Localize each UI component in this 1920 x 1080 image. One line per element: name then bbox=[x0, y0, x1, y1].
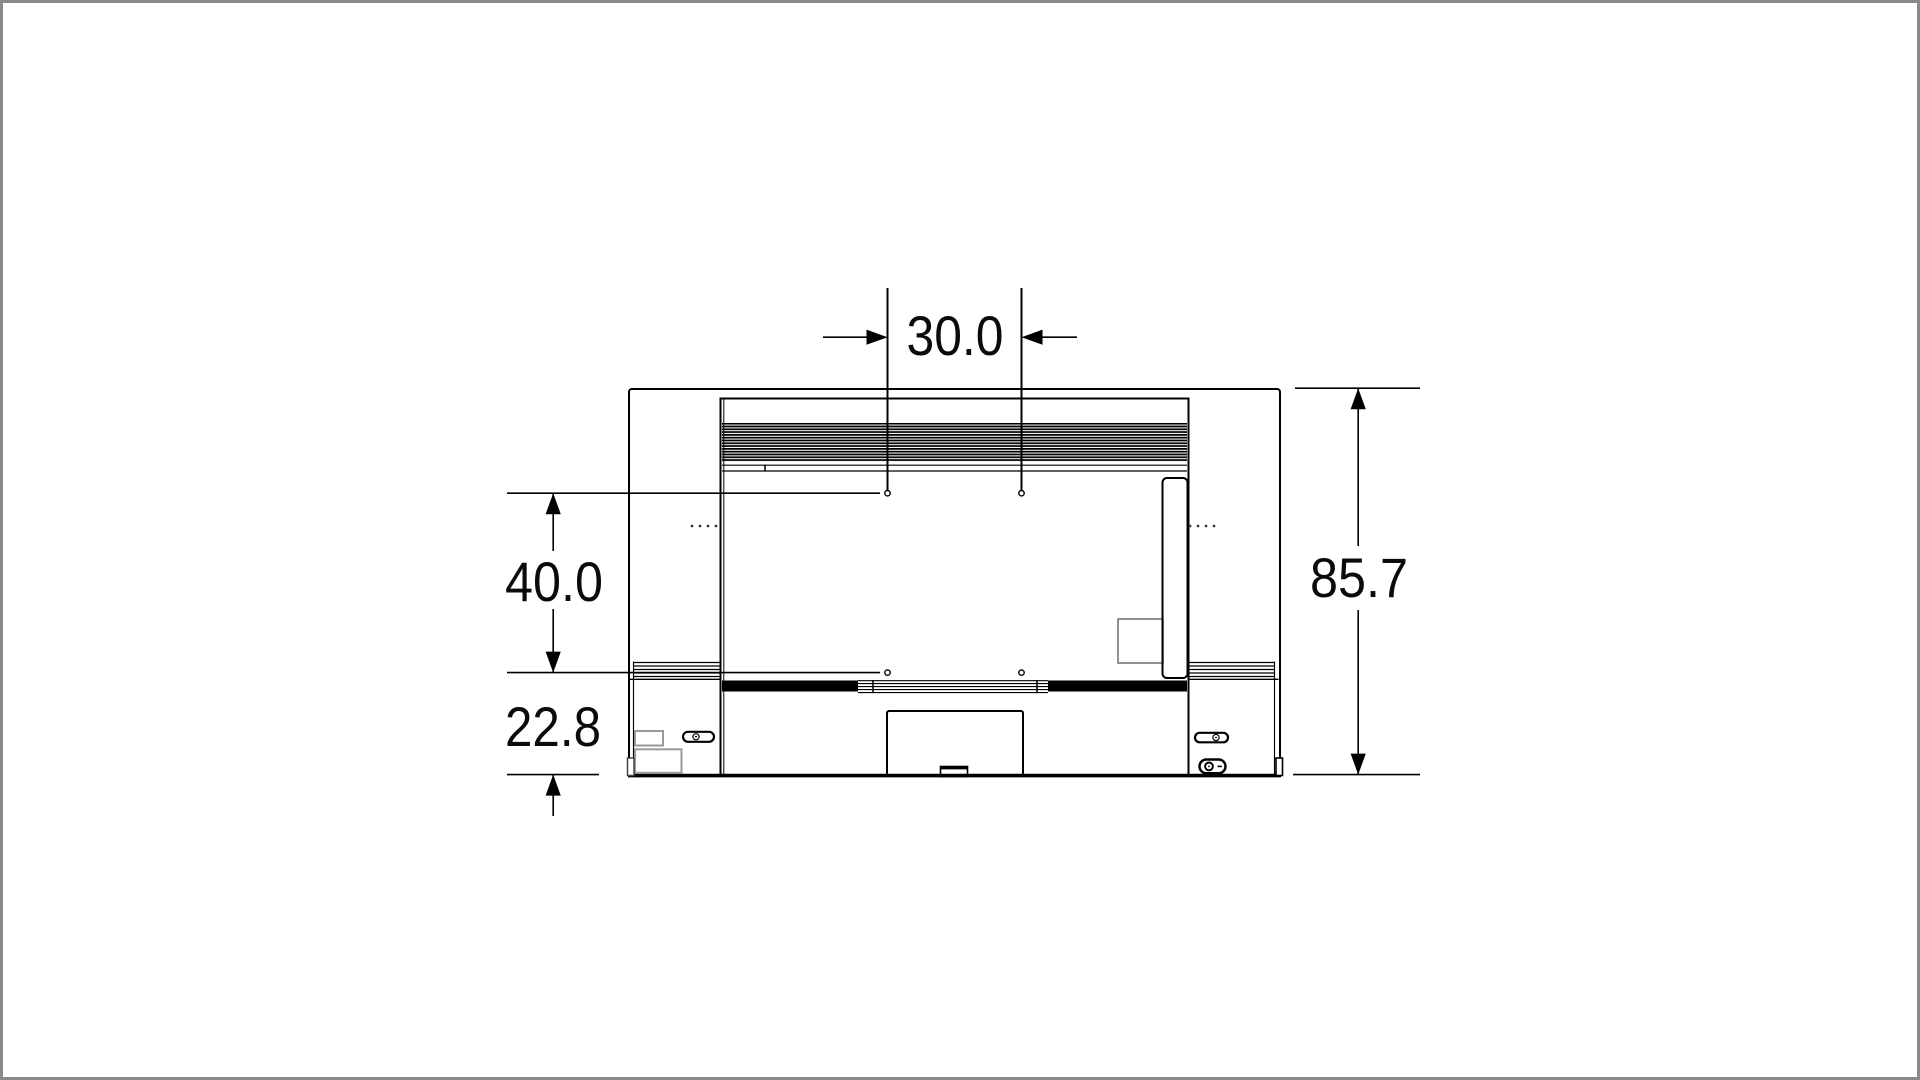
arrow-right-icon bbox=[867, 330, 888, 345]
right-corner-clip bbox=[1276, 758, 1283, 776]
screw-dots-left bbox=[691, 525, 718, 528]
screw-dots-right bbox=[1189, 525, 1216, 528]
arrow-down-icon bbox=[546, 652, 561, 673]
mount-hole-bottom-left bbox=[885, 670, 890, 675]
vent-grille-lower-trim bbox=[722, 465, 1187, 471]
bottom-speaker-bar bbox=[722, 680, 1187, 693]
drawing-canvas: 30.0 40.0 22.8 85.7 bbox=[0, 0, 1920, 1080]
right-control-button bbox=[1195, 733, 1228, 743]
tv-rear-dimension-diagram: 30.0 40.0 22.8 85.7 bbox=[0, 0, 1920, 1080]
label-sticker-large bbox=[635, 749, 682, 773]
speaker-bar-center-slots bbox=[858, 681, 1048, 693]
speaker-bar-right-segment bbox=[1048, 681, 1187, 692]
arrow-up-icon bbox=[546, 775, 561, 796]
arrow-down-icon bbox=[1351, 754, 1366, 775]
arrow-up-icon bbox=[546, 493, 561, 514]
dim-label-hole-height: 40.0 bbox=[505, 550, 603, 613]
dim-label-hole-width: 30.0 bbox=[907, 304, 1004, 367]
left-control-button bbox=[683, 732, 714, 742]
left-corner-clip bbox=[628, 758, 635, 776]
dim-label-overall-height: 85.7 bbox=[1310, 546, 1408, 609]
tv-rear-body bbox=[628, 389, 1283, 777]
mount-hole-bottom-right bbox=[1019, 670, 1024, 675]
dimension-overall-height: 85.7 bbox=[1293, 388, 1420, 774]
speaker-bar-left-segment bbox=[722, 681, 858, 692]
cable-cover-strip bbox=[1163, 478, 1188, 678]
terminal-box bbox=[1118, 619, 1163, 663]
mount-hole-top-right bbox=[1019, 491, 1024, 496]
dim-label-bottom-offset: 22.8 bbox=[505, 695, 601, 758]
arrow-left-icon bbox=[1022, 330, 1043, 345]
arrow-up-icon bbox=[1351, 388, 1366, 409]
mount-hole-top-left bbox=[885, 491, 890, 496]
label-sticker-small bbox=[635, 731, 663, 746]
right-speaker-slots bbox=[1189, 662, 1279, 776]
power-switch bbox=[1200, 760, 1226, 774]
page-border bbox=[2, 2, 1919, 1079]
dimension-left-side: 40.0 22.8 bbox=[505, 493, 880, 816]
vent-grille bbox=[722, 423, 1187, 462]
vesa-mount-holes bbox=[885, 491, 1024, 676]
